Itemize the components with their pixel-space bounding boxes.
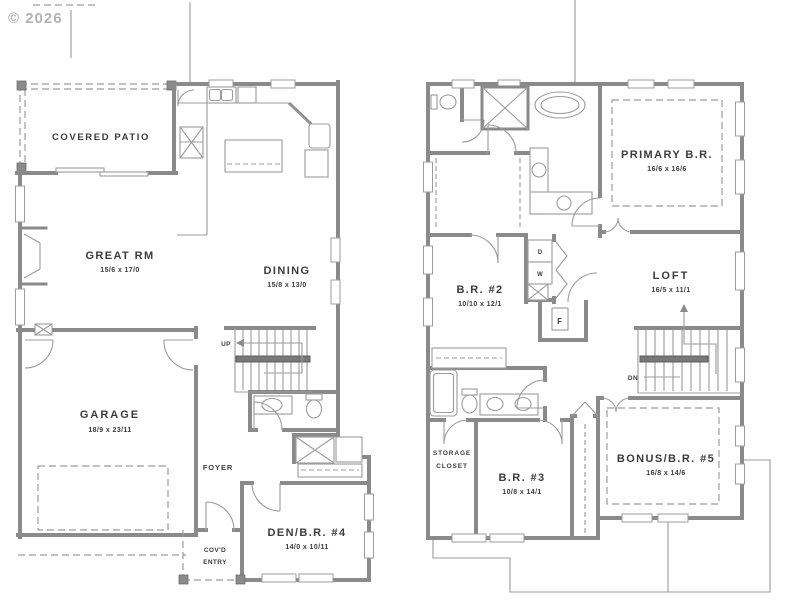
primary-shower: [482, 87, 528, 129]
room-label-covd: COV'D: [204, 547, 226, 554]
room-label-primary: PRIMARY B.R.: [621, 149, 713, 161]
room-label-garage: GARAGE: [80, 409, 140, 421]
room-label-covered-patio: COVERED PATIO: [52, 132, 150, 143]
powder-bath: [254, 394, 322, 430]
room-label-great-rm: GREAT RM: [85, 250, 154, 262]
floor-plan-canvas: © 2026 COVERED PATIO: [0, 0, 800, 600]
stair-handrail: [640, 356, 708, 362]
room-dims-garage: 18/9 x 23/11: [88, 427, 131, 434]
den-br4: DEN/B.R. #4 14/0 x 10/11: [252, 437, 362, 551]
first-floor-plan: COVERED PATIO: [16, 80, 374, 584]
stair-direction-arrow: [680, 304, 688, 312]
kitchen: [177, 87, 330, 235]
hall-door-swing: [568, 273, 597, 302]
storage-door-swing: [444, 420, 468, 444]
garage: GARAGE 18/9 x 23/11: [18, 324, 193, 555]
foyer: FOYER: [203, 463, 234, 530]
room-label-foyer: FOYER: [203, 463, 233, 472]
bonus-door-swing: [602, 398, 630, 412]
primary-closet: [436, 158, 520, 230]
water-heater-vent: [35, 324, 52, 335]
garage-side-door-swing: [25, 340, 53, 368]
room-dims-br3: 10/8 x 14/1: [502, 489, 541, 496]
covered-entry: COV'D ENTRY: [179, 530, 245, 584]
stair-label-up: UP: [221, 341, 231, 348]
room-label-bonus: BONUS/B.R. #5: [617, 453, 715, 465]
primary-bedroom: PRIMARY B.R. 16/6 x 16/6: [604, 100, 722, 232]
stairs-first-floor: UP: [221, 328, 312, 392]
kitchen-island: [225, 140, 282, 172]
laundry-sink: [528, 284, 548, 300]
stair-label-dn: DN: [628, 375, 638, 382]
furnace-closet: F: [552, 273, 597, 330]
site-lines: [33, 0, 575, 84]
hall-toilet: [462, 389, 477, 413]
room-label-entry: ENTRY: [203, 559, 227, 566]
front-door-swing: [206, 502, 234, 530]
refrigerator: [309, 124, 330, 148]
room-label-br2: B.R. #2: [456, 284, 503, 296]
dishwasher: [238, 87, 256, 103]
primary-door-swing: [604, 218, 632, 232]
patio-post: [17, 81, 26, 90]
dining-room: DINING 15/8 x 13/0: [264, 265, 311, 289]
entry-post: [236, 575, 245, 584]
room-dims-den-br4: 14/0 x 10/11: [285, 544, 328, 551]
great-room: GREAT RM 15/6 x 17/0: [20, 228, 155, 284]
laundry-closet: D W: [528, 240, 567, 300]
room-label-loft: LOFT: [653, 270, 690, 282]
toilet-room: [431, 95, 484, 142]
den-door-swing: [252, 483, 280, 511]
hall-vanity: [480, 394, 538, 415]
room-label-closet: CLOSET: [436, 463, 468, 470]
room-dims-primary: 16/6 x 16/6: [647, 166, 686, 173]
br3-closet: [572, 402, 598, 534]
br2-door-swing: [470, 235, 498, 263]
garage-dashed-area: [38, 466, 168, 530]
room-dims-bonus: 16/8 x 14/6: [646, 470, 685, 477]
bonus-br5: BONUS/B.R. #5 16/8 x 14/6: [602, 398, 719, 504]
roof-outline: [433, 460, 770, 592]
stairs-second-floor: DN: [628, 304, 742, 393]
washer-label: W: [537, 272, 543, 278]
den-shower: [296, 437, 334, 463]
stair-direction-arrow: [236, 339, 244, 347]
room-dims-great-rm: 15/6 x 17/0: [100, 267, 139, 274]
br2-closet: [432, 348, 506, 368]
br3-door-swing: [538, 420, 562, 444]
entry-post: [179, 575, 188, 584]
laundry-bifold-doors: [556, 242, 567, 298]
hall-bath: [430, 370, 545, 416]
bedroom-2: B.R. #2 10/10 x 12/1: [432, 235, 506, 368]
furnace-label: F: [557, 317, 563, 326]
room-label-den-br4: DEN/B.R. #4: [268, 527, 347, 539]
patio-door-swing: [178, 90, 194, 106]
room-dims-loft: 16/5 x 11/1: [651, 287, 690, 294]
range: [180, 127, 203, 158]
pantry-cabinet: [305, 150, 328, 177]
fireplace: [20, 228, 46, 284]
covered-patio: COVERED PATIO: [17, 81, 176, 172]
copyright-watermark: © 2026: [8, 10, 63, 27]
primary-bath: [431, 87, 600, 226]
dryer-label: D: [538, 250, 543, 256]
room-label-dining: DINING: [264, 265, 311, 277]
powder-sink: [262, 399, 282, 412]
stair-handrail: [236, 356, 310, 362]
room-dims-br2: 10/10 x 12/1: [458, 301, 502, 308]
room-label-storage: STORAGE: [433, 450, 471, 457]
loft: LOFT 16/5 x 11/1: [651, 270, 690, 294]
patio-slider-door: [56, 168, 148, 176]
storage-closet: STORAGE CLOSET: [433, 420, 471, 470]
powder-toilet: [306, 394, 322, 418]
room-label-br3: B.R. #3: [498, 472, 545, 484]
floor-plan-screenshot: © 2026 COVERED PATIO: [0, 0, 800, 600]
second-floor-plan: PRIMARY B.R. 16/6 x 16/6 B.R. #2 10/10 x…: [424, 80, 771, 592]
garage-entry-door-swing: [164, 340, 193, 370]
room-dims-dining: 15/8 x 13/0: [267, 282, 306, 289]
